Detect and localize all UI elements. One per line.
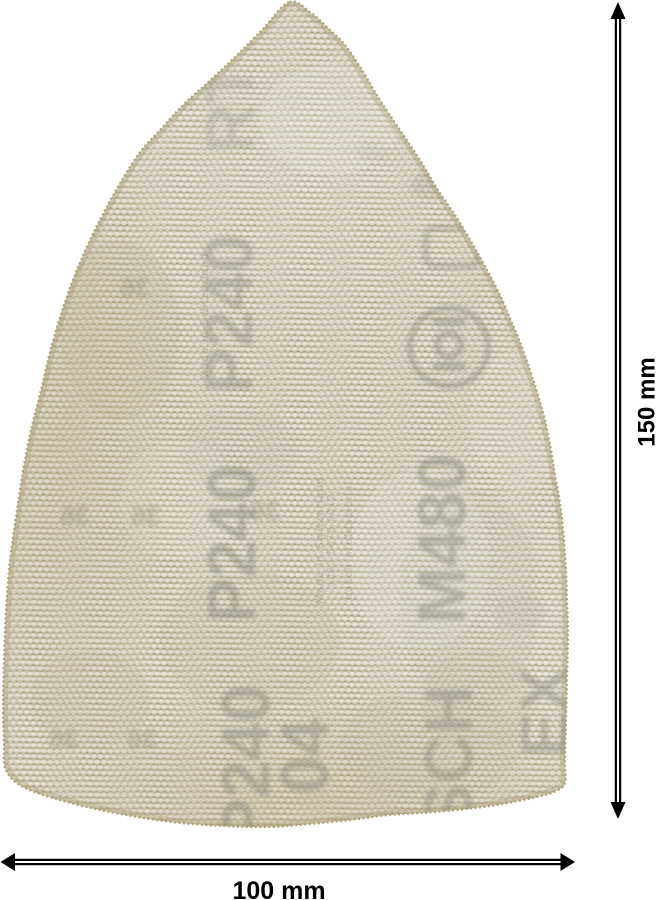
svg-text:Made in Switzerland: Made in Switzerland	[199, 252, 211, 380]
svg-text:36: 36	[49, 724, 79, 754]
svg-text:36: 36	[127, 724, 157, 754]
svg-text:36: 36	[120, 273, 150, 303]
svg-text:1233 5678 9012: 1233 5678 9012	[326, 493, 337, 586]
svg-text:36: 36	[131, 501, 161, 531]
svg-text:100 mm: 100 mm	[232, 877, 325, 900]
svg-text:150 mm: 150 mm	[634, 357, 656, 446]
svg-text:04: 04	[267, 718, 343, 794]
svg-text:36: 36	[250, 496, 280, 526]
svg-text:bosch-professional: bosch-professional	[343, 480, 355, 599]
svg-text:Made in Switzerland: Made in Switzerland	[314, 476, 326, 604]
svg-text:36: 36	[60, 501, 90, 531]
